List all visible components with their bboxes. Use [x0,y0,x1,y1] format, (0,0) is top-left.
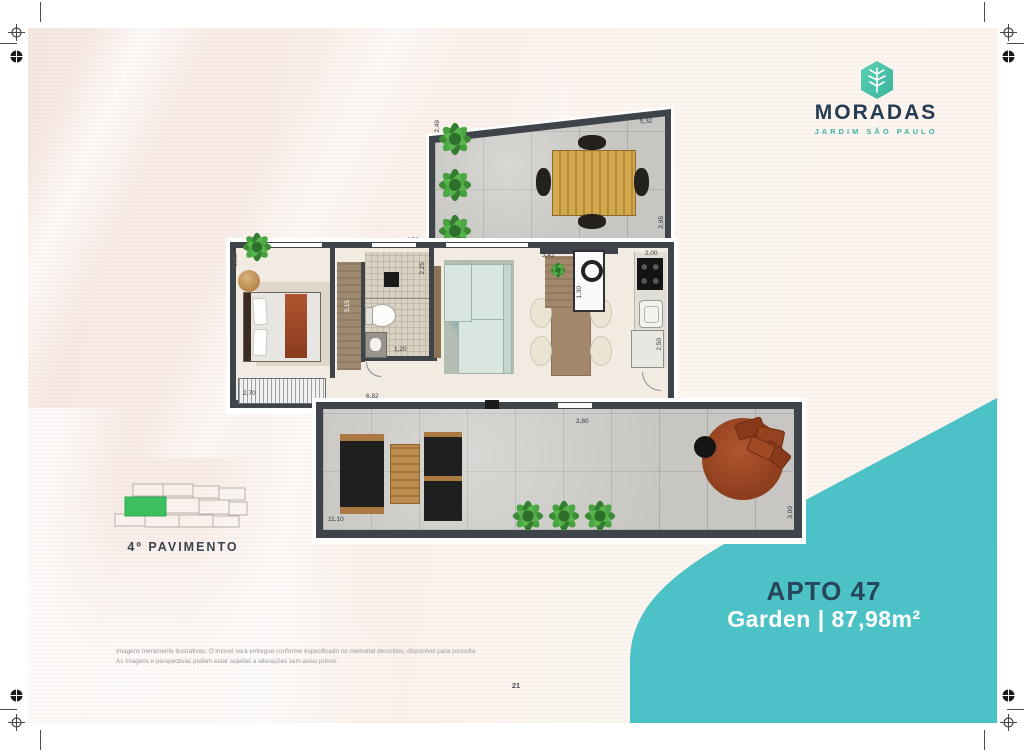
plant-icon [584,500,616,532]
dim-label: 2,49 [434,120,441,133]
dim-label: 1,20 [394,346,407,353]
outdoor-armchair [424,476,462,521]
registration-mark-icon [1000,24,1017,41]
plant-icon [512,500,544,532]
crop-mark [0,43,17,44]
crop-mark [0,709,17,710]
pillow [252,329,267,357]
dining-chair [590,336,612,366]
crop-mark [1007,709,1024,710]
disclaimer-text: Imagens meramente ilustrativas. O imóvel… [116,647,546,667]
disclaimer-line: As imagens e perspectivas podem estar su… [116,657,546,667]
chair [634,168,649,196]
registration-mark-icon [8,24,25,41]
unit-title: APTO 47 [684,576,964,607]
dim-label: 2,70 [243,390,256,397]
dim-label: 2,00 [645,250,658,257]
sofa-chaise [444,264,472,322]
washer-door [581,260,603,282]
wall [330,247,335,378]
unit-subtitle: Garden | 87,98m² [684,606,964,633]
shower-head [384,272,399,287]
bathroom-sink [365,332,387,358]
headboard [244,293,251,361]
tv-cabinet [434,266,441,358]
outdoor-sofa [340,434,384,514]
wall [794,402,802,538]
shower-partition [365,298,429,299]
dim-label: 1,30 [576,286,583,299]
logo-subtitle: JARDIM SÃO PAULO [776,127,976,136]
logo-wordmark: MORADAS [776,101,976,125]
crop-mark [40,2,41,22]
sofa-wood-arm [340,434,384,441]
dim-label: 2,25 [419,262,426,275]
plant-icon [438,168,472,202]
dim-label: 2,95 [658,216,665,229]
plant-icon [548,500,580,532]
dining-chair [530,336,552,366]
dim-label: 11,10 [328,516,344,523]
terrace-door [558,403,592,408]
logo-leaf-icon [859,60,895,100]
dim-label: 3,15 [344,300,351,313]
bed-throw [285,294,307,358]
plant-icon [550,262,566,278]
wall [316,402,323,538]
dim-label: 2,50 [656,338,663,351]
coffee-table [390,444,420,504]
registration-mark-icon [1000,714,1017,731]
kitchen-sink [639,300,663,328]
chair [578,135,606,150]
basket [238,270,260,292]
washing-machine [573,250,605,312]
chair [578,214,606,229]
registration-mark-icon [8,714,25,731]
sofa-wood-arm [340,507,384,514]
registration-dot-icon [10,50,23,63]
building-section-diagram [106,482,250,530]
dim-label: 3,42 [542,252,555,259]
plant-icon [242,232,272,262]
bed [243,292,321,362]
cooktop [637,258,663,290]
brochure-page: APTO 47 Garden | 87,98m² [0,0,1024,752]
plant-icon [438,122,472,156]
registration-dot-icon [10,689,23,702]
crop-mark [984,730,985,750]
terrace-door [446,243,528,247]
chair [536,168,551,196]
dim-label: 0,93 [232,254,239,267]
registration-dot-icon [1002,50,1015,63]
sink-bowl [644,306,659,323]
wall [230,242,236,408]
crop-mark [1007,43,1024,44]
pillow [252,298,268,326]
disclaimer-line: Imagens meramente ilustrativas. O imóvel… [116,647,546,657]
registration-dot-icon [1002,689,1015,702]
window [372,243,416,247]
side-table [694,436,716,458]
door-frame [485,400,499,409]
dim-label: 3,00 [787,506,794,519]
toilet-tank [365,307,373,325]
outdoor-dining-table [552,150,636,216]
wall [668,242,674,408]
sink-basin [370,338,381,351]
outdoor-armchair [424,432,462,477]
crop-mark [40,730,41,750]
dim-label: 2,80 [576,418,589,425]
sofa-backrest [503,265,511,373]
floor-highlight [125,497,166,516]
crop-mark [984,2,985,22]
floor-indicator-label: 4º PAVIMENTO [98,540,268,554]
page-number: 21 [486,681,546,690]
wardrobe [337,262,361,370]
dim-label: 5,32 [640,117,653,125]
